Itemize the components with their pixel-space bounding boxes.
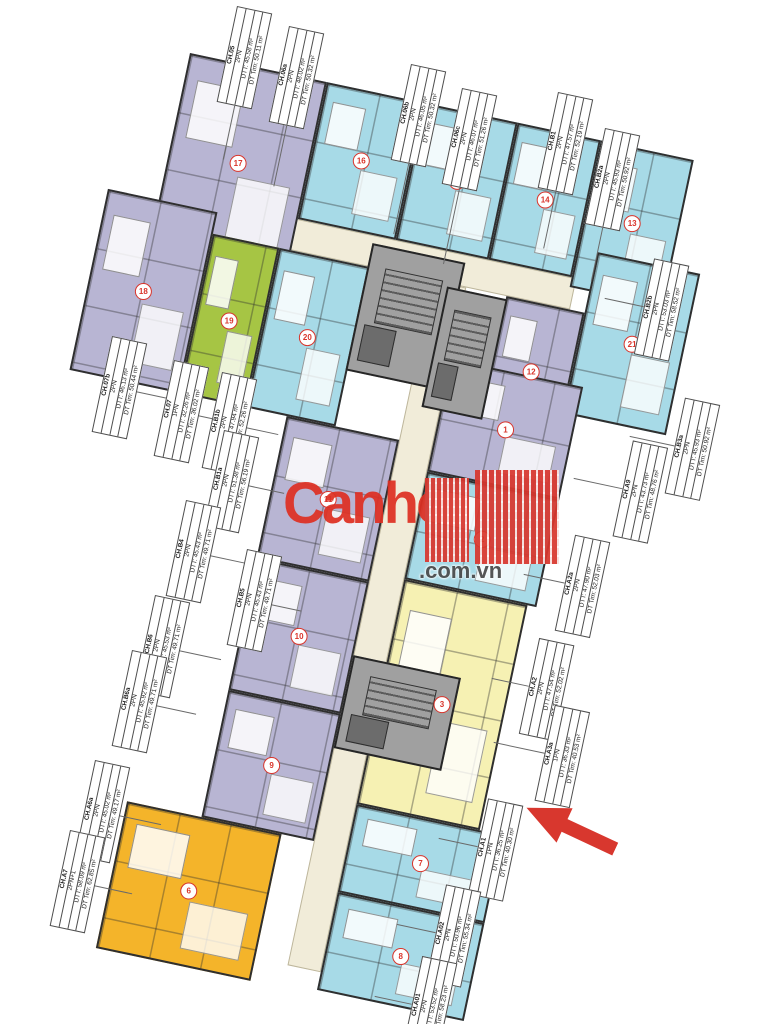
- area-tag: CH.B3a2PNDTT: 45.93 m²DT Tim: 50.92 m²: [665, 398, 721, 501]
- tag-leader-line: [95, 885, 132, 894]
- tag-leader-line: [249, 485, 284, 493]
- floor-plan-page: 1716151413181920122112378111096 Canho .c…: [0, 0, 757, 1024]
- area-tag: CH.B42PNDTT: 45.43 m²DT Tim: 49.71 m²: [166, 500, 222, 603]
- watermark-suffix: .com.vn: [419, 558, 502, 584]
- unit-number-badge: 6: [180, 883, 197, 900]
- area-tag: CH.A11PNDTT: 36.25 m²DT Tim: 40.30 m²: [468, 798, 524, 901]
- watermark-characters: [475, 470, 559, 564]
- watermark: Canho .com.vn: [283, 462, 603, 582]
- area-tag-table: CH.B42PNDTT: 45.43 m²DT Tim: 49.71 m²: [166, 500, 222, 603]
- unit-number-badge: 9: [263, 757, 280, 774]
- area-tag-table: CH.A72PN+1DTT: 58.09 m²DT Tim: 62.85 m²: [50, 830, 106, 933]
- tag-leader-line: [605, 297, 644, 306]
- area-tag-table: CH.B3a2PNDTT: 45.93 m²DT Tim: 50.92 m²: [665, 398, 721, 501]
- tag-leader-line: [247, 427, 279, 435]
- area-tag-group: CH.B6a2PNDTT: 45.92 m²DT Tim: 49.71 m²: [112, 650, 207, 762]
- unit-number-badge: 18: [135, 283, 152, 300]
- tag-leader-line: [494, 741, 545, 753]
- tag-leader-line: [120, 815, 161, 825]
- tag-leader-line: [439, 837, 478, 846]
- area-tag-table: CH.A11PNDTT: 36.25 m²DT Tim: 40.30 m²: [468, 798, 524, 901]
- tag-leader-line: [157, 705, 196, 714]
- tag-leader-line: [222, 105, 234, 159]
- tag-leader-line: [375, 995, 412, 1004]
- unit-number-badge: 3: [434, 696, 451, 713]
- unit-number-badge: 1: [497, 421, 514, 438]
- unit-number-badge: 19: [221, 312, 238, 329]
- tag-leader-line: [273, 125, 287, 186]
- tag-leader-line: [543, 191, 556, 248]
- tag-leader-line: [211, 555, 248, 564]
- unit-number-badge: 7: [412, 855, 429, 872]
- area-tag: CH.A72PN+1DTT: 58.09 m²DT Tim: 62.85 m²: [50, 830, 106, 933]
- tag-leader-line: [397, 923, 436, 932]
- tag-leader-line: [590, 227, 602, 281]
- tag-leader-line: [180, 650, 221, 660]
- unit-number-badge: 13: [623, 215, 640, 232]
- watermark-logo: [425, 478, 469, 562]
- tag-leader-line: [272, 604, 302, 611]
- unit-number-badge: 20: [299, 329, 316, 346]
- unit-number-badge: 16: [353, 152, 370, 169]
- watermark-brand: Canho: [283, 470, 448, 537]
- unit-number-badge: 12: [523, 363, 540, 380]
- area-tag: CH.B6a2PNDTT: 45.92 m²DT Tim: 49.71 m²: [112, 650, 168, 753]
- tag-leader-line: [443, 187, 460, 264]
- area-tag-table: CH.B6a2PNDTT: 45.92 m²DT Tim: 49.71 m²: [112, 650, 168, 753]
- tag-leader-line: [393, 163, 409, 234]
- tag-leader-line: [492, 677, 529, 686]
